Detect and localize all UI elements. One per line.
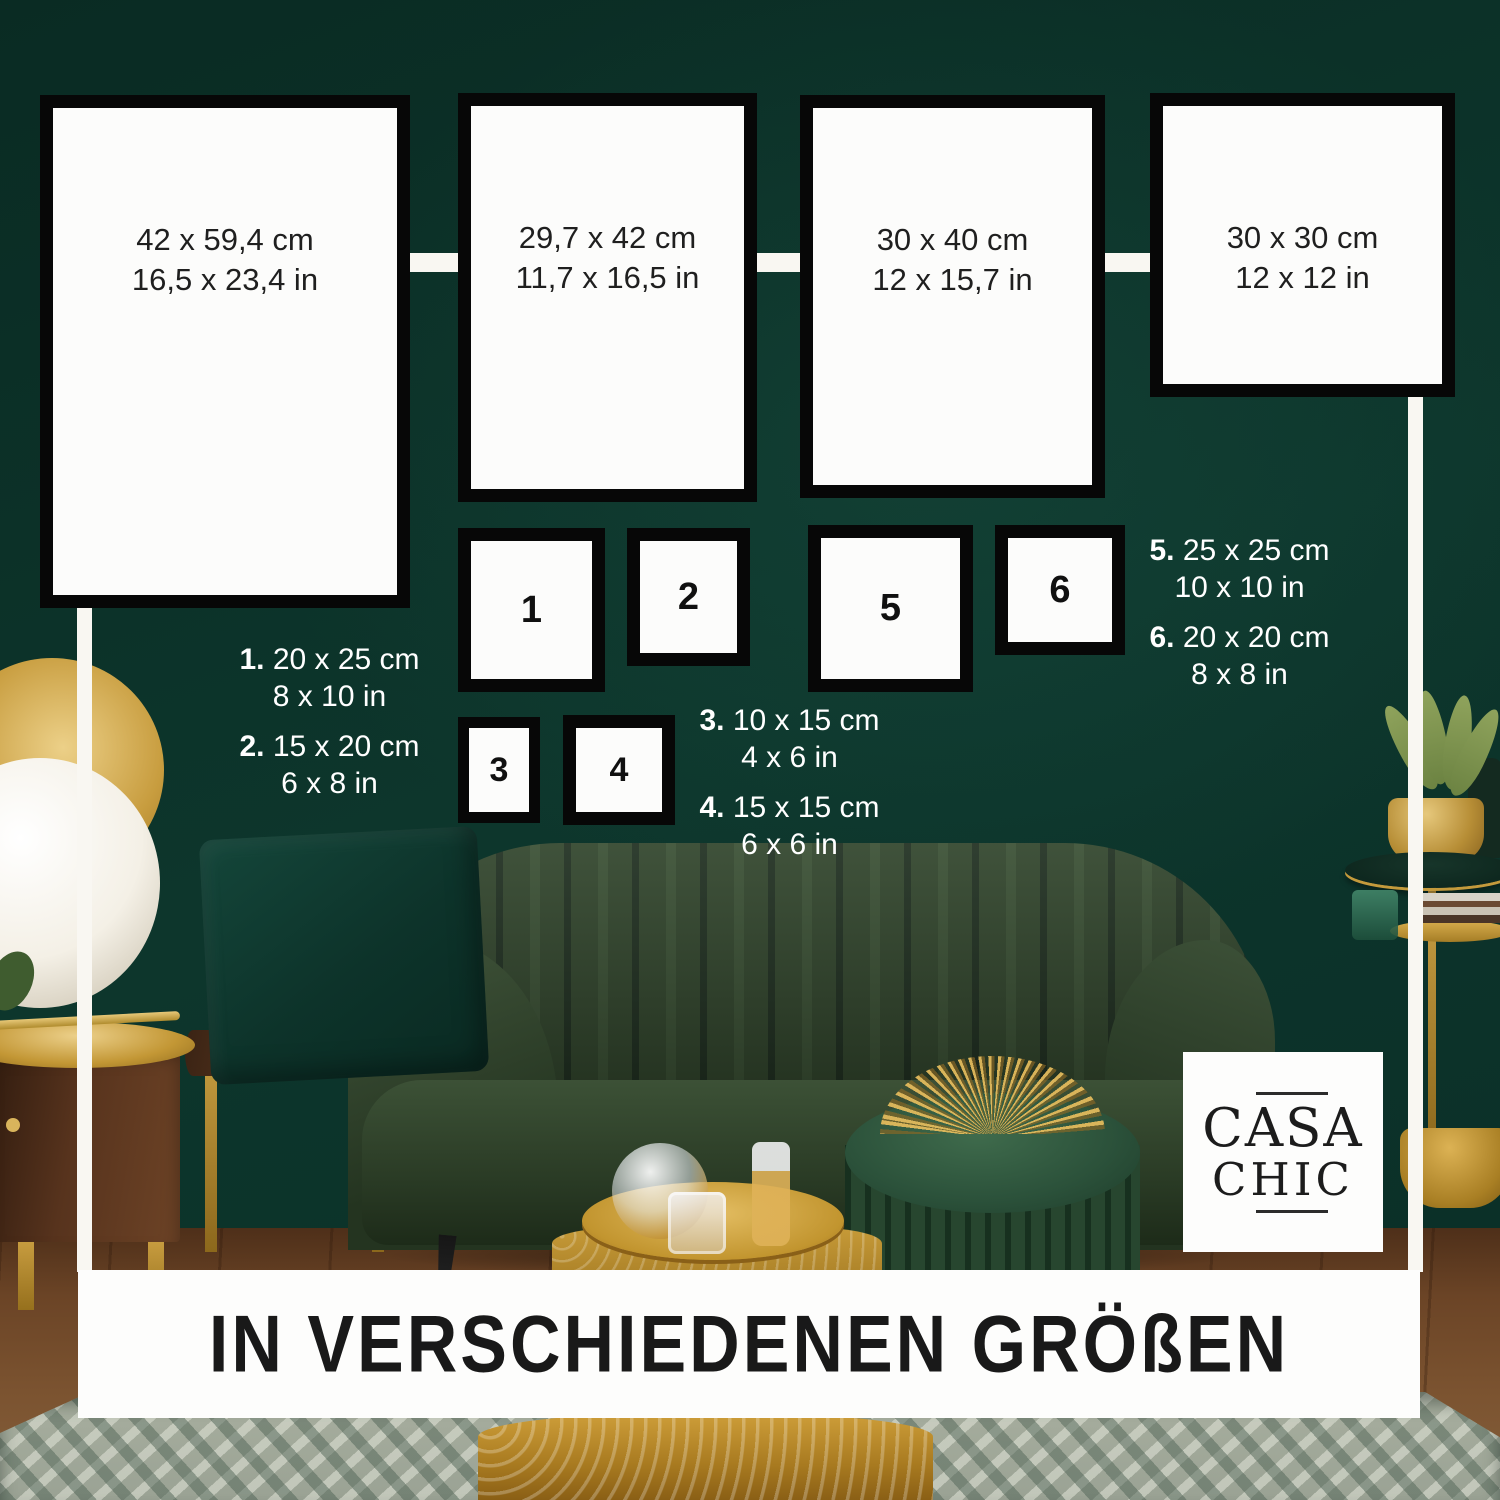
- frame-number-3: 3: [458, 717, 540, 823]
- textured-glass: [668, 1192, 726, 1254]
- logo-top-rule: [1256, 1092, 1328, 1095]
- legend-cm: 20 x 25 cm: [273, 643, 420, 676]
- frame-size-label: 30 x 40 cm 12 x 15,7 in: [813, 220, 1092, 300]
- legend-item-1: 1. 20 x 25 cm 8 x 10 in: [222, 641, 437, 715]
- legend-item-3: 3. 10 x 15 cm 4 x 6 in: [682, 702, 897, 776]
- frame-number-label: 2: [678, 576, 699, 619]
- size-cm: 29,7 x 42 cm: [471, 218, 744, 258]
- frame-number-1: 1: [458, 528, 605, 692]
- legend-number: 4.: [699, 791, 724, 824]
- size-inch: 12 x 12 in: [1163, 258, 1442, 298]
- legend-inch: 6 x 8 in: [222, 765, 437, 802]
- legend-item-2: 2. 15 x 20 cm 6 x 8 in: [222, 728, 437, 802]
- hammered-gold-drum-table: [478, 1412, 933, 1500]
- legend-inch: 4 x 6 in: [682, 739, 897, 776]
- size-cm: 30 x 30 cm: [1163, 218, 1442, 258]
- frame-number-label: 1: [521, 589, 542, 632]
- legend-line-cm: 4. 15 x 15 cm: [682, 789, 897, 826]
- legend-number: 1.: [239, 643, 264, 676]
- side-table-leg: [205, 1072, 217, 1252]
- size-cm: 30 x 40 cm: [813, 220, 1092, 260]
- legend-item-5: 5. 25 x 25 cm 10 x 10 in: [1132, 532, 1347, 606]
- legend-item-4: 4. 15 x 15 cm 6 x 6 in: [682, 789, 897, 863]
- frame-size-guide-image: 42 x 59,4 cm 16,5 x 23,4 in 29,7 x 42 cm…: [0, 0, 1500, 1500]
- sideboard-leg: [18, 1242, 34, 1310]
- sideboard-knob: [6, 1118, 20, 1132]
- legend-inch: 8 x 8 in: [1132, 656, 1347, 693]
- frame-size-label: 29,7 x 42 cm 11,7 x 16,5 in: [471, 218, 744, 298]
- frame-number-label: 4: [610, 751, 629, 790]
- frame-number-6: 6: [995, 525, 1125, 655]
- legend-cm: 15 x 20 cm: [273, 730, 420, 763]
- size-inch: 11,7 x 16,5 in: [471, 258, 744, 298]
- size-inch: 16,5 x 23,4 in: [53, 260, 397, 300]
- frame-size-label: 30 x 30 cm 12 x 12 in: [1163, 218, 1442, 298]
- legend-group-middle: 3. 10 x 15 cm 4 x 6 in 4. 15 x 15 cm 6 x…: [682, 702, 897, 876]
- frame-30x40cm: 30 x 40 cm 12 x 15,7 in: [800, 95, 1105, 498]
- legend-line-cm: 6. 20 x 20 cm: [1132, 619, 1347, 656]
- connector-line-horizontal-2: [757, 253, 800, 272]
- legend-number: 3.: [699, 704, 724, 737]
- logo-bottom-rule: [1256, 1210, 1328, 1213]
- legend-cm: 15 x 15 cm: [733, 791, 880, 824]
- legend-line-cm: 3. 10 x 15 cm: [682, 702, 897, 739]
- logo-word-casa: CASA: [1202, 1102, 1363, 1155]
- connector-line-horizontal-1: [410, 253, 458, 272]
- legend-inch: 6 x 6 in: [682, 826, 897, 863]
- frame-number-2: 2: [627, 528, 750, 666]
- frame-size-label: 42 x 59,4 cm 16,5 x 23,4 in: [53, 220, 397, 300]
- gold-side-table-shelf: [1390, 920, 1500, 942]
- frame-number-4: 4: [563, 715, 675, 825]
- frame-number-label: 3: [490, 751, 509, 790]
- legend-group-right: 5. 25 x 25 cm 10 x 10 in 6. 20 x 20 cm 8…: [1132, 532, 1347, 706]
- size-inch: 12 x 15,7 in: [813, 260, 1092, 300]
- legend-item-6: 6. 20 x 20 cm 8 x 8 in: [1132, 619, 1347, 693]
- legend-cm: 25 x 25 cm: [1183, 534, 1330, 567]
- stacked-books: [1420, 893, 1500, 923]
- connector-line-horizontal-3: [1105, 253, 1150, 272]
- connector-line-vertical-left: [77, 608, 92, 1272]
- legend-inch: 8 x 10 in: [222, 678, 437, 715]
- logo-word-chic: CHIC: [1212, 1157, 1354, 1202]
- bottom-title-banner: IN VERSCHIEDENEN GRÖßEN: [78, 1270, 1420, 1418]
- legend-line-cm: 2. 15 x 20 cm: [222, 728, 437, 765]
- legend-cm: 10 x 15 cm: [733, 704, 880, 737]
- legend-inch: 10 x 10 in: [1132, 569, 1347, 606]
- legend-number: 2.: [239, 730, 264, 763]
- frame-30x30cm: 30 x 30 cm 12 x 12 in: [1150, 93, 1455, 397]
- frame-number-label: 6: [1049, 569, 1070, 612]
- legend-line-cm: 1. 20 x 25 cm: [222, 641, 437, 678]
- banner-title: IN VERSCHIEDENEN GRÖßEN: [209, 1298, 1289, 1390]
- legend-number: 5.: [1149, 534, 1174, 567]
- legend-number: 6.: [1149, 621, 1174, 654]
- legend-line-cm: 5. 25 x 25 cm: [1132, 532, 1347, 569]
- champagne-flute: [752, 1142, 790, 1246]
- legend-cm: 20 x 20 cm: [1183, 621, 1330, 654]
- frame-number-5: 5: [808, 525, 973, 692]
- frame-number-label: 5: [880, 587, 901, 630]
- green-drinking-glass: [1352, 890, 1398, 940]
- frame-42x59cm: 42 x 59,4 cm 16,5 x 23,4 in: [40, 95, 410, 608]
- size-cm: 42 x 59,4 cm: [53, 220, 397, 260]
- velvet-pillow: [199, 826, 489, 1085]
- legend-group-left: 1. 20 x 25 cm 8 x 10 in 2. 15 x 20 cm 6 …: [222, 641, 437, 815]
- frame-29x42cm: 29,7 x 42 cm 11,7 x 16,5 in: [458, 93, 757, 502]
- connector-line-vertical-right: [1408, 395, 1423, 1272]
- casa-chic-logo: CASA CHIC: [1183, 1052, 1383, 1252]
